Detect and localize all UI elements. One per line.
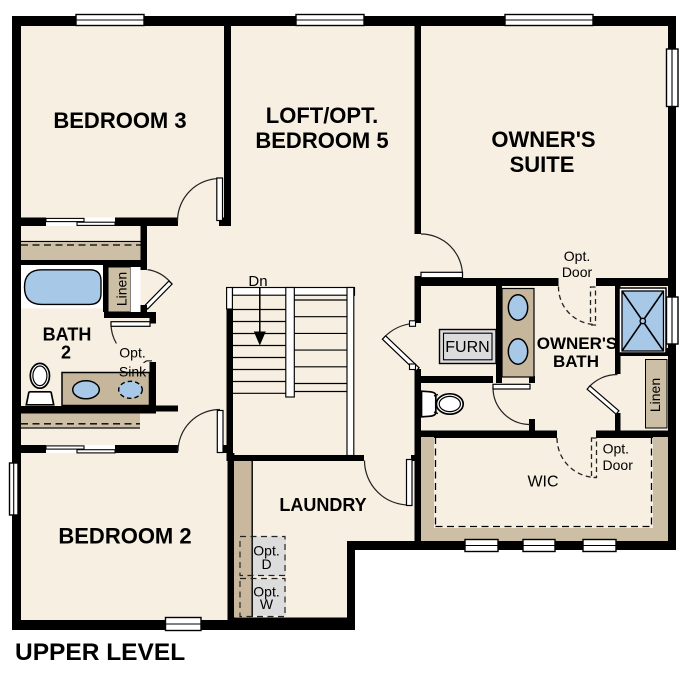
svg-text:Linen: Linen (113, 272, 129, 306)
svg-text:Door: Door (603, 457, 634, 473)
svg-text:Linen: Linen (647, 378, 663, 412)
svg-text:WIC: WIC (527, 474, 558, 491)
svg-text:2: 2 (61, 343, 71, 363)
svg-text:BEDROOM 3: BEDROOM 3 (53, 108, 186, 133)
svg-text:Opt.: Opt. (564, 248, 590, 264)
svg-text:UPPER LEVEL: UPPER LEVEL (15, 639, 185, 666)
svg-text:Opt.: Opt. (119, 345, 145, 361)
svg-text:LAUNDRY: LAUNDRY (279, 495, 366, 515)
svg-text:FURN: FURN (445, 339, 489, 356)
svg-text:Sink: Sink (119, 364, 147, 380)
svg-text:Door: Door (562, 264, 593, 280)
svg-text:BATH: BATH (43, 325, 92, 345)
svg-text:BEDROOM 5: BEDROOM 5 (255, 128, 388, 153)
svg-text:BEDROOM 2: BEDROOM 2 (58, 524, 191, 549)
svg-text:W: W (260, 596, 274, 612)
svg-text:Dn: Dn (248, 273, 267, 290)
svg-text:D: D (261, 556, 271, 572)
svg-text:OWNER'S: OWNER'S (491, 127, 595, 152)
svg-text:Opt.: Opt. (603, 441, 629, 457)
svg-text:OWNER'S: OWNER'S (537, 334, 618, 353)
svg-text:SUITE: SUITE (510, 152, 575, 177)
svg-text:BATH: BATH (553, 352, 599, 371)
svg-text:LOFT/OPT.: LOFT/OPT. (266, 103, 378, 128)
